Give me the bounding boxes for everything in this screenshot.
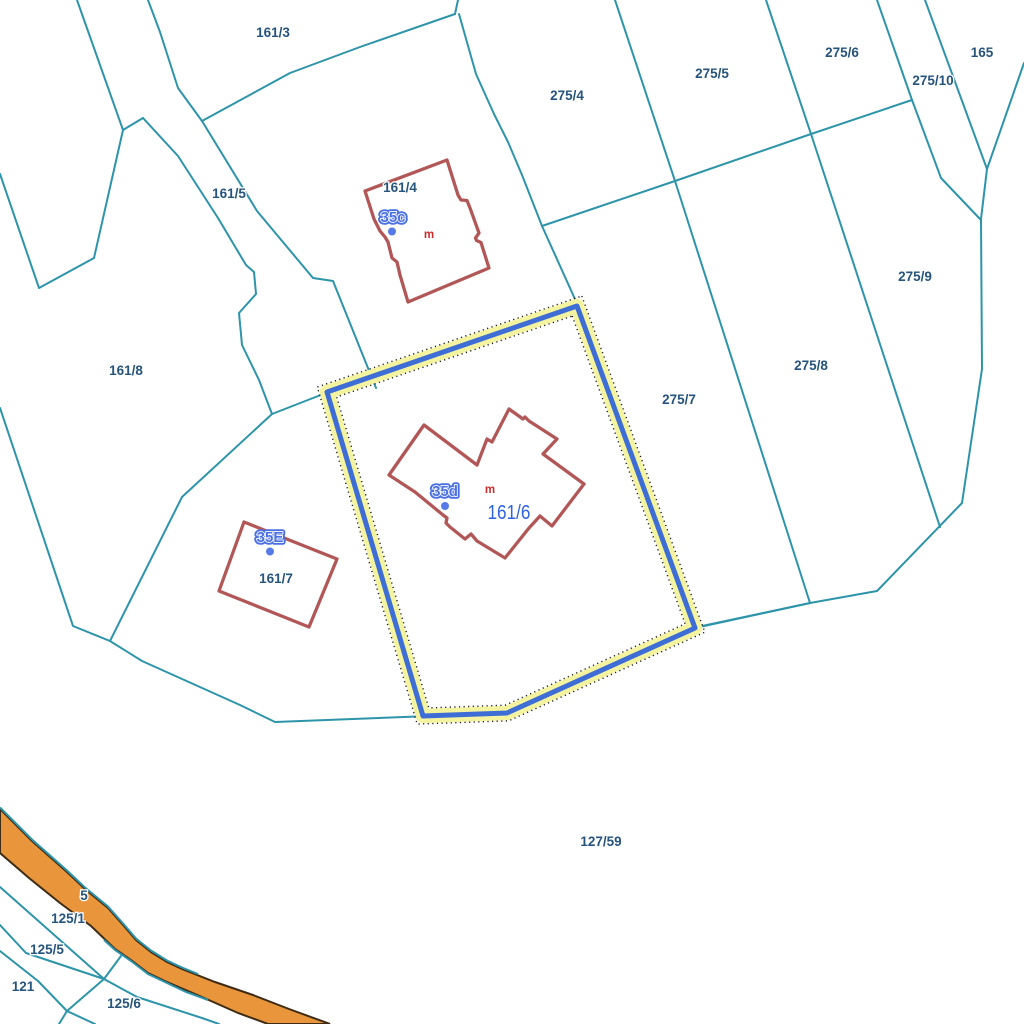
svg-text:161/6: 161/6 <box>488 502 531 524</box>
svg-text:275/9: 275/9 <box>898 269 932 284</box>
svg-text:275/8: 275/8 <box>794 358 828 373</box>
svg-text:35d: 35d <box>432 483 458 500</box>
svg-text:121: 121 <box>12 979 35 994</box>
svg-text:125/6: 125/6 <box>107 996 141 1011</box>
svg-text:m: m <box>485 484 495 496</box>
svg-text:275/6: 275/6 <box>825 45 859 60</box>
svg-text:275/4: 275/4 <box>550 88 584 103</box>
svg-text:161/8: 161/8 <box>109 363 143 378</box>
svg-text:275/7: 275/7 <box>662 392 696 407</box>
svg-text:275/10: 275/10 <box>912 73 953 88</box>
svg-text:35E: 35E <box>257 529 284 546</box>
svg-text:165: 165 <box>971 45 994 60</box>
svg-text:161/7: 161/7 <box>259 571 293 586</box>
svg-text:161/3: 161/3 <box>256 25 290 40</box>
svg-text:5: 5 <box>80 888 88 903</box>
svg-text:35c: 35c <box>380 209 405 226</box>
svg-text:125/1: 125/1 <box>51 911 85 926</box>
svg-text:161/4: 161/4 <box>383 180 417 195</box>
svg-text:127/59: 127/59 <box>580 834 621 849</box>
svg-text:m: m <box>424 229 434 241</box>
svg-text:275/5: 275/5 <box>695 66 729 81</box>
svg-text:125/5: 125/5 <box>30 942 64 957</box>
svg-text:161/5: 161/5 <box>212 186 246 201</box>
